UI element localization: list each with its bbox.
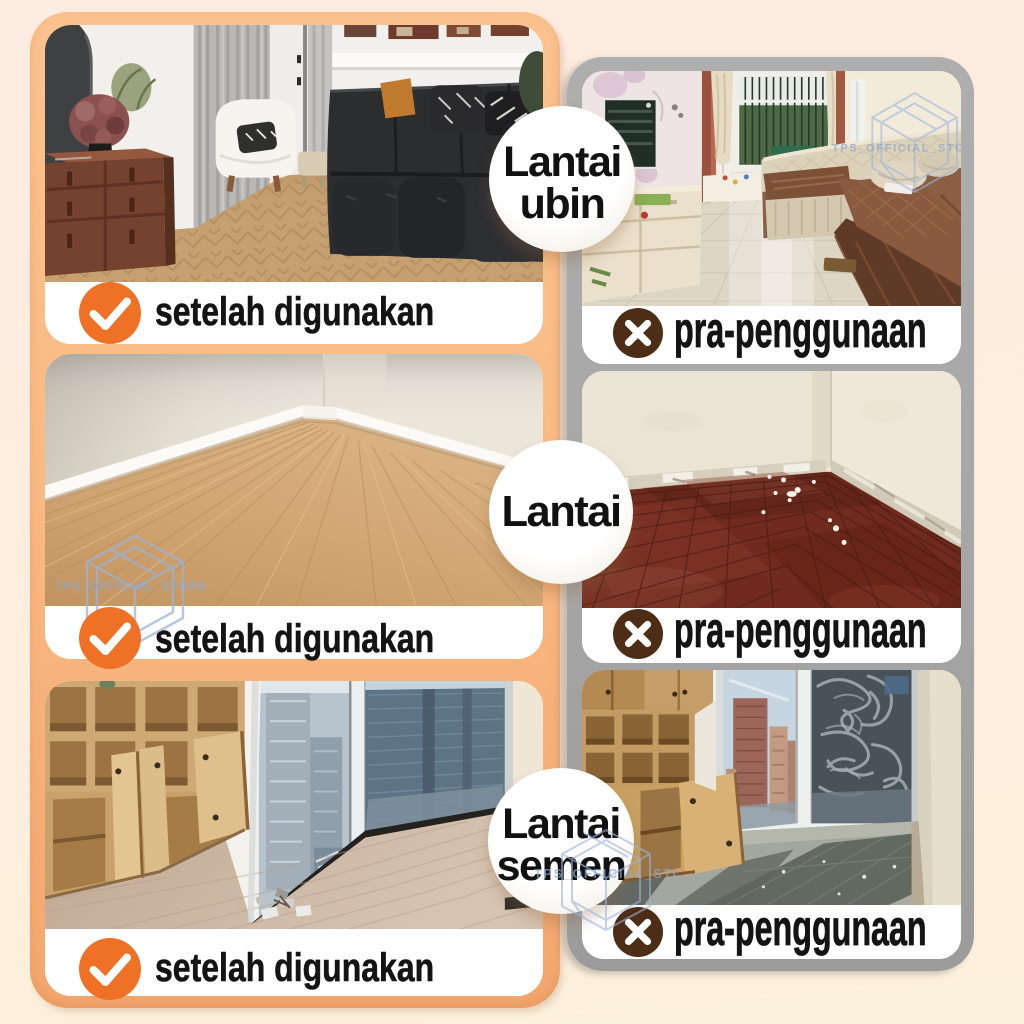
svg-text:TPS_OFFICIAL_STORE: TPS_OFFICIAL_STORE (55, 581, 208, 593)
svg-text:TPS_OFFICIAL_STORE: TPS_OFFICIAL_STORE (832, 143, 961, 155)
svg-text:TPS_OFFICIAL_STORE: TPS_OFFICIAL_STORE (534, 867, 678, 881)
